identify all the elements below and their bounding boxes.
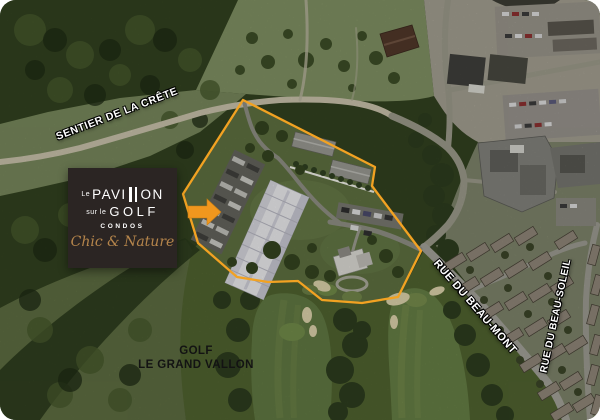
page: SENTIER DE LA CRÊTE RUE DU BEAU-MONT RUE… <box>0 0 600 420</box>
logo-middle-name: GOLF <box>109 204 158 219</box>
logo-tagline: Chic & Nature <box>71 234 175 250</box>
logo-subtitle: CONDOS <box>100 223 144 230</box>
logo-middle-prefix: sur le <box>86 209 106 216</box>
logo-stylized-ll-icon <box>128 187 139 202</box>
logo-card: Le PAVI ON sur le GOLF CONDOS Chic & Nat… <box>68 168 177 268</box>
logo-name-part2: ON <box>141 187 164 202</box>
logo-prefix: Le <box>81 191 90 198</box>
logo-name-part1: PAVI <box>92 187 126 202</box>
logo-middle: sur le GOLF <box>86 204 159 219</box>
logo-name: Le PAVI ON <box>81 187 163 202</box>
aerial-map: SENTIER DE LA CRÊTE RUE DU BEAU-MONT RUE… <box>0 0 600 420</box>
